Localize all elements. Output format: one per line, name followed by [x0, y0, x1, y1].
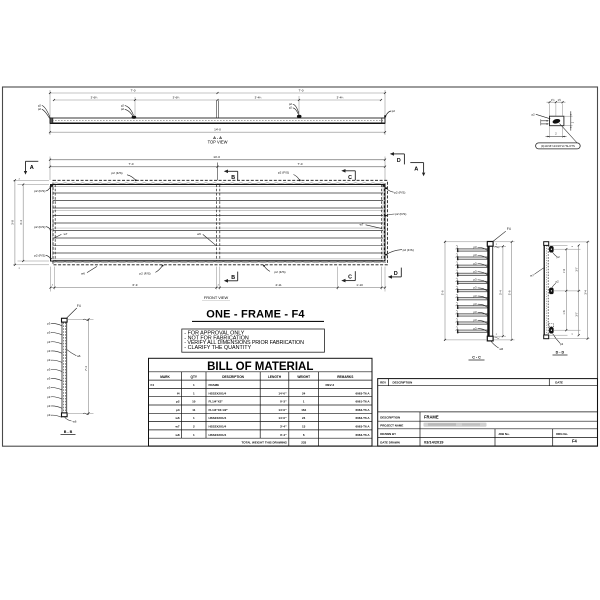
- svg-text:14'-0: 14'-0: [214, 128, 221, 132]
- svg-text:6'-9: 6'-9: [133, 283, 138, 287]
- svg-text:DATE: DATE: [555, 381, 563, 385]
- svg-text:w7: w7: [64, 232, 68, 236]
- svg-text:6063-T6 A: 6063-T6 A: [355, 433, 370, 437]
- svg-text:A: A: [414, 166, 418, 172]
- svg-text:w7: w7: [174, 425, 179, 429]
- svg-text:7'-0: 7'-0: [297, 162, 302, 166]
- svg-text:F4: F4: [77, 304, 81, 308]
- svg-text:3'-7: 3'-7: [575, 267, 578, 272]
- svg-text:0'-3": 0'-3": [280, 400, 287, 404]
- svg-text:p3: p3: [473, 286, 477, 290]
- svg-text:MARK: MARK: [160, 375, 170, 379]
- svg-text:3'-4": 3'-4": [280, 433, 287, 437]
- svg-text:p3: p3: [47, 377, 51, 381]
- svg-text:3'-4¾: 3'-4¾: [337, 95, 344, 99]
- svg-text:7'-0: 7'-0: [298, 88, 303, 92]
- svg-text:ONE - FRAME - F4: ONE - FRAME - F4: [206, 309, 305, 321]
- svg-text:BILL OF MATERIAL: BILL OF MATERIAL: [207, 361, 313, 373]
- svg-text:w6: w6: [81, 272, 85, 276]
- svg-text:C - C: C - C: [472, 355, 481, 359]
- svg-text:TOTAL WEIGHT THIS DRAWING: TOTAL WEIGHT THIS DRAWING: [242, 441, 288, 445]
- svg-text:B: B: [231, 275, 235, 281]
- svg-text:w7: w7: [530, 273, 534, 277]
- svg-text:p3: p3: [473, 253, 477, 257]
- svg-text:HSS2X2X1/4: HSS2X2X1/4: [209, 425, 227, 429]
- svg-text:p3: p3: [47, 395, 51, 399]
- svg-text:14'-0": 14'-0": [278, 408, 287, 412]
- svg-text:w7: w7: [360, 222, 364, 226]
- svg-text:HSS2X2X1/4: HSS2X2X1/4: [209, 433, 227, 437]
- svg-text:14'-0: 14'-0: [213, 155, 220, 159]
- svg-text:14'-0": 14'-0": [278, 391, 287, 395]
- svg-text:p2 (F/S): p2 (F/S): [34, 189, 45, 193]
- svg-text:a6: a6: [77, 354, 81, 358]
- svg-text:4'-11: 4'-11: [275, 283, 282, 287]
- svg-text:DRG No.: DRG No.: [556, 432, 568, 436]
- svg-text:DESCRIPTION: DESCRIPTION: [222, 375, 244, 379]
- svg-text:p3: p3: [47, 358, 51, 362]
- svg-text:C: C: [348, 275, 352, 281]
- svg-text:p2 (F/S): p2 (F/S): [111, 171, 122, 175]
- svg-text:A: A: [30, 165, 34, 171]
- svg-text:3'-8: 3'-8: [11, 220, 15, 225]
- svg-text:p2 (F/S): p2 (F/S): [395, 212, 406, 216]
- svg-text:F4: F4: [151, 383, 155, 387]
- svg-text:HSS2X2X1/4: HSS2X2X1/4: [209, 416, 227, 420]
- svg-text:REV-2: REV-2: [326, 383, 335, 387]
- svg-text:6063-T6 A: 6063-T6 A: [355, 408, 370, 412]
- svg-text:7'-0: 7'-0: [130, 88, 135, 92]
- svg-text:w8: w8: [174, 433, 179, 437]
- svg-text:p2 (F/S): p2 (F/S): [34, 225, 45, 229]
- svg-text:p3: p3: [473, 326, 477, 330]
- svg-text:3'-6¼: 3'-6¼: [173, 95, 180, 99]
- svg-text:p2: p2: [560, 342, 564, 346]
- svg-text:REMARKS: REMARKS: [337, 375, 353, 379]
- svg-text:JOB No.: JOB No.: [498, 432, 510, 436]
- svg-text:p2: p2: [38, 107, 42, 111]
- svg-text:p2: p2: [121, 107, 125, 111]
- svg-text:FL1/4"X2": FL1/4"X2": [209, 400, 224, 404]
- svg-text:7'-0: 7'-0: [128, 162, 133, 166]
- svg-text:p3: p3: [473, 310, 477, 314]
- svg-text:p2 (F/S): p2 (F/S): [139, 272, 150, 276]
- svg-text:(4)13/16"x13/16"x1"SLOTS: (4)13/16"x13/16"x1"SLOTS: [541, 144, 575, 148]
- svg-text:DESCRIPTION: DESCRIPTION: [393, 381, 413, 385]
- svg-text:24: 24: [302, 391, 306, 395]
- svg-text:p2 (F/S): p2 (F/S): [403, 248, 414, 252]
- svg-text:B - B: B - B: [64, 430, 73, 434]
- svg-text:3'-4¾: 3'-4¾: [255, 95, 262, 99]
- svg-text:233: 233: [301, 441, 306, 445]
- svg-text:p3: p3: [47, 322, 51, 326]
- svg-text:p3: p3: [473, 302, 477, 306]
- svg-text:6063-T6 A: 6063-T6 A: [355, 391, 370, 395]
- svg-text:1'-10: 1'-10: [356, 283, 363, 287]
- svg-text:6063-T6 A: 6063-T6 A: [355, 416, 370, 420]
- svg-text:3'-4: 3'-4: [499, 290, 503, 295]
- svg-text:11: 11: [192, 408, 196, 412]
- svg-text:24: 24: [302, 416, 306, 420]
- svg-text:p3: p3: [47, 349, 51, 353]
- svg-text:DATE DRAWN: DATE DRAWN: [380, 440, 399, 444]
- svg-text:w6: w6: [73, 420, 77, 424]
- svg-text:p2 (F/S): p2 (F/S): [34, 254, 45, 258]
- svg-text:w6: w6: [499, 347, 503, 351]
- svg-text:FL1/4"X3 1/2": FL1/4"X3 1/2": [209, 408, 229, 412]
- svg-text:03/14/2019: 03/14/2019: [424, 440, 444, 445]
- svg-text:D: D: [397, 158, 401, 164]
- svg-text:p3: p3: [47, 386, 51, 390]
- svg-text:D: D: [394, 271, 398, 277]
- svg-text:p2: p2: [176, 400, 180, 404]
- svg-text:p2: p2: [532, 112, 536, 116]
- svg-text:F4: F4: [507, 227, 511, 231]
- svg-text:p3: p3: [473, 261, 477, 265]
- svg-text:FRAME: FRAME: [209, 383, 220, 387]
- svg-text:p3: p3: [47, 340, 51, 344]
- svg-text:QTY: QTY: [190, 375, 197, 379]
- svg-text:p2: p2: [289, 106, 293, 110]
- svg-text:FRONT VIEW: FRONT VIEW: [204, 295, 229, 300]
- svg-text:p3: p3: [473, 318, 477, 322]
- svg-text:p3: p3: [47, 404, 51, 408]
- svg-text:LENGTH: LENGTH: [268, 375, 282, 379]
- svg-text:TOP VIEW: TOP VIEW: [208, 140, 228, 145]
- svg-text:14'-0": 14'-0": [278, 416, 287, 420]
- svg-text:f4: f4: [177, 391, 180, 395]
- svg-text:REV: REV: [380, 381, 386, 385]
- svg-text:3'-7: 3'-7: [575, 312, 578, 317]
- svg-text:3'-4: 3'-4: [583, 290, 587, 295]
- svg-text:D - D: D - D: [556, 350, 565, 354]
- svg-text:p2: p2: [556, 279, 560, 283]
- svg-text:p3: p3: [473, 294, 477, 298]
- svg-text:3'-6¼: 3'-6¼: [91, 95, 98, 99]
- svg-text:w6: w6: [174, 416, 179, 420]
- svg-text:p3: p3: [176, 408, 180, 412]
- svg-text:6063-T6 A: 6063-T6 A: [355, 425, 370, 429]
- svg-text:HSS2X2X1/4: HSS2X2X1/4: [209, 391, 227, 395]
- svg-text:p2 (F/S): p2 (F/S): [274, 270, 285, 274]
- svg-text:164: 164: [301, 408, 306, 412]
- svg-text:p3: p3: [473, 269, 477, 273]
- svg-text:3'-6: 3'-6: [507, 290, 511, 295]
- svg-text:3'-6: 3'-6: [441, 290, 445, 295]
- svg-text:13: 13: [302, 425, 306, 429]
- svg-text:p3: p3: [473, 278, 477, 282]
- svg-text:p3: p3: [47, 367, 51, 371]
- svg-text:p2: p2: [392, 109, 396, 113]
- svg-text:7'-4: 7'-4: [84, 366, 88, 371]
- svg-text:WEIGHT: WEIGHT: [297, 375, 310, 379]
- svg-text:p3: p3: [47, 331, 51, 335]
- svg-text:DESCRIPTION: DESCRIPTION: [380, 416, 400, 420]
- svg-text:3'-4": 3'-4": [280, 425, 287, 429]
- svg-text:PROJECT NAME: PROJECT NAME: [380, 424, 403, 428]
- svg-text:1'-8: 1'-8: [563, 310, 566, 315]
- svg-text:p3: p3: [473, 245, 477, 249]
- svg-text:DRAWN BY: DRAWN BY: [380, 432, 396, 436]
- svg-text:10: 10: [192, 400, 196, 404]
- svg-text:F4: F4: [572, 439, 578, 444]
- svg-text:1'-9: 1'-9: [563, 268, 566, 273]
- svg-text:- CLARIFY THE QUANTITY: - CLARIFY THE QUANTITY: [184, 345, 251, 351]
- svg-text:6061-T6 A: 6061-T6 A: [355, 400, 370, 404]
- svg-text:p2: p2: [557, 255, 561, 259]
- svg-text:p3: p3: [47, 413, 51, 417]
- svg-text:p2 (F/S): p2 (F/S): [278, 171, 289, 175]
- svg-text:w6: w6: [197, 232, 201, 236]
- svg-text:p2 (F/S): p2 (F/S): [394, 190, 405, 194]
- svg-text:3'-4: 3'-4: [19, 220, 23, 225]
- svg-text:FRAME: FRAME: [424, 415, 439, 420]
